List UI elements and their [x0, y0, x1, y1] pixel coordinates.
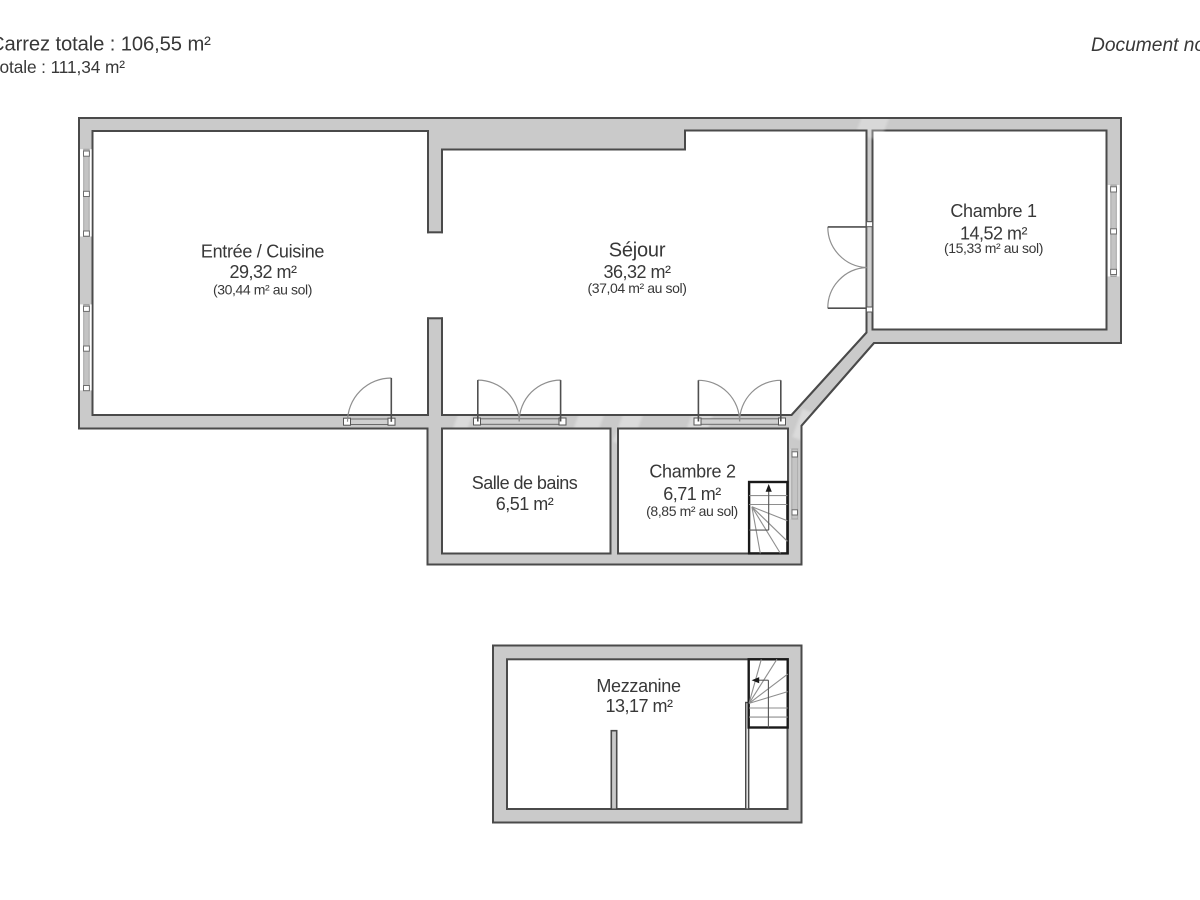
svg-text:Entrée / Cuisine: Entrée / Cuisine	[201, 242, 325, 262]
svg-text:otale : 111,34 m²: otale : 111,34 m²	[0, 57, 125, 77]
svg-text:(8,85 m² au sol): (8,85 m² au sol)	[646, 503, 738, 519]
svg-text:13,17 m²: 13,17 m²	[605, 696, 673, 716]
svg-text:Carrez totale : 106,55 m²: Carrez totale : 106,55 m²	[0, 34, 211, 56]
svg-text:Chambre 1: Chambre 1	[950, 201, 1037, 221]
svg-text:Séjour: Séjour	[609, 240, 666, 262]
svg-text:(30,44 m² au sol): (30,44 m² au sol)	[213, 282, 312, 298]
svg-text:29,32 m²: 29,32 m²	[229, 262, 297, 282]
svg-text:Salle de bains: Salle de bains	[472, 473, 578, 493]
svg-text:Document non contractuel: Document non contractuel	[1091, 35, 1200, 56]
svg-text:36,32 m²: 36,32 m²	[603, 262, 671, 282]
svg-text:(15,33 m² au sol): (15,33 m² au sol)	[944, 240, 1043, 256]
svg-text:6,71 m²: 6,71 m²	[663, 484, 721, 504]
svg-text:Chambre 2: Chambre 2	[649, 462, 736, 482]
svg-text:Mezzanine: Mezzanine	[596, 676, 681, 696]
svg-text:(37,04 m² au sol): (37,04 m² au sol)	[587, 280, 686, 296]
svg-text:6,51 m²: 6,51 m²	[496, 494, 554, 514]
